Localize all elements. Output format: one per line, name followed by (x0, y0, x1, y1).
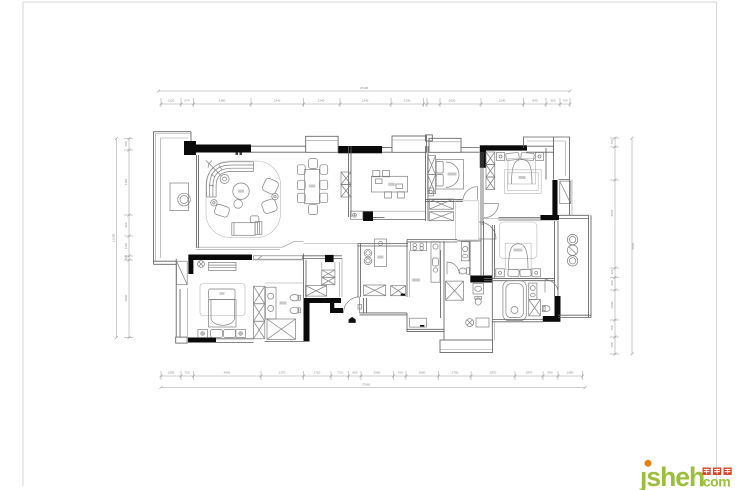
svg-text:1040: 1040 (274, 99, 281, 103)
svg-text:750: 750 (610, 342, 614, 347)
svg-text:2170: 2170 (279, 371, 286, 375)
svg-text:150: 150 (124, 255, 128, 260)
svg-text:700: 700 (610, 139, 614, 144)
svg-text:750: 750 (562, 99, 567, 103)
svg-text:800: 800 (352, 371, 357, 375)
svg-text:4150: 4150 (124, 178, 128, 185)
svg-text:4360: 4360 (224, 371, 231, 375)
svg-text:2060: 2060 (419, 371, 426, 375)
svg-text:150: 150 (610, 325, 614, 330)
svg-text:720: 720 (184, 371, 189, 375)
svg-text:1540: 1540 (362, 99, 369, 103)
svg-text:740: 740 (397, 371, 402, 375)
svg-text:2120: 2120 (168, 99, 175, 103)
svg-text:6000: 6000 (124, 294, 128, 301)
svg-text:550: 550 (550, 99, 555, 103)
svg-text:1710: 1710 (314, 371, 321, 375)
svg-text:970: 970 (184, 99, 189, 103)
svg-text:700: 700 (124, 141, 128, 146)
svg-text:27196: 27196 (360, 86, 369, 90)
svg-text:3130: 3130 (404, 99, 411, 103)
svg-text:350: 350 (124, 222, 128, 227)
svg-text:1870: 1870 (526, 371, 533, 375)
svg-text:840: 840 (532, 99, 537, 103)
svg-text:2760: 2760 (452, 371, 459, 375)
svg-text:1240: 1240 (499, 99, 506, 103)
svg-text:9180: 9180 (219, 99, 226, 103)
svg-text:2230: 2230 (610, 301, 614, 308)
svg-text:1580: 1580 (567, 371, 574, 375)
svg-text:2870: 2870 (490, 371, 497, 375)
svg-text:2060: 2060 (374, 371, 381, 375)
svg-text:1340: 1340 (318, 99, 325, 103)
svg-text:12200: 12200 (112, 233, 116, 242)
svg-text:.com: .com (700, 474, 731, 490)
svg-text:220: 220 (610, 269, 614, 274)
svg-text:5070: 5070 (610, 209, 614, 216)
svg-text:1120: 1120 (124, 242, 128, 249)
svg-text:300: 300 (610, 280, 614, 285)
svg-text:9520: 9520 (631, 242, 635, 249)
svg-text:990: 990 (547, 371, 552, 375)
svg-text:5530: 5530 (449, 99, 456, 103)
svg-text:27060: 27060 (362, 383, 371, 387)
svg-text:710: 710 (337, 371, 342, 375)
svg-text:1360: 1360 (168, 371, 175, 375)
